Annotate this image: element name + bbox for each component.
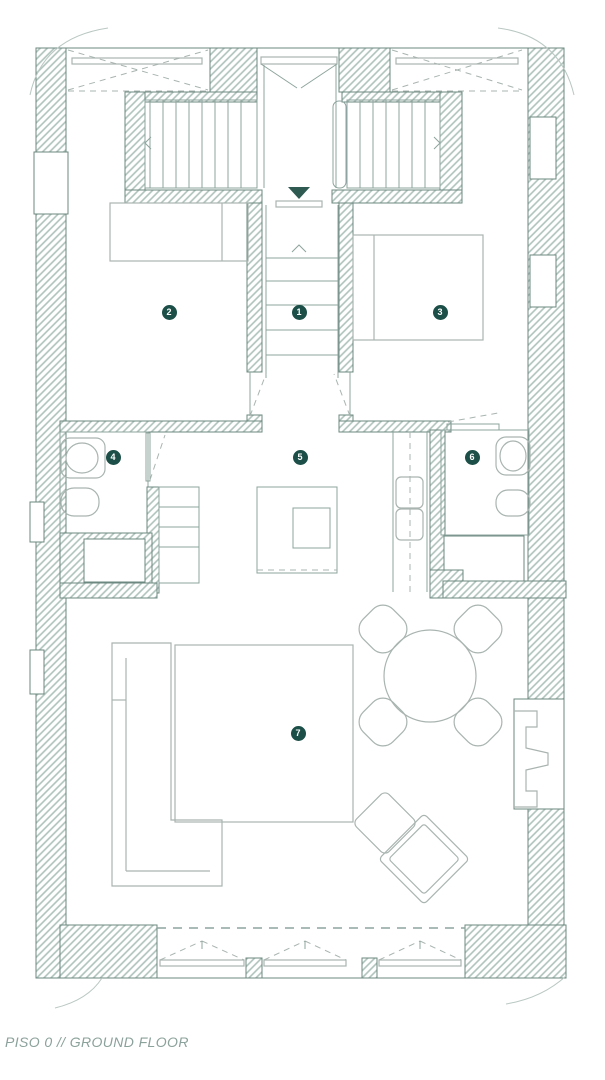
right-wall-niche-upper — [530, 117, 556, 179]
bed-2 — [110, 203, 248, 261]
wardrobe-rod — [72, 58, 202, 64]
wardrobe-jamb — [339, 48, 390, 92]
fireplace-niche — [514, 699, 564, 809]
left-wall-notch-lower — [30, 650, 44, 694]
wardrobe-right — [339, 48, 522, 92]
entrance-door — [261, 57, 337, 64]
chair — [448, 599, 507, 658]
floor-plan-page: 1 2 3 4 5 6 7 PISO 0 // GROUND FLOOR — [0, 0, 605, 1080]
bed-3 — [353, 235, 483, 340]
bathroom-4-outline — [60, 432, 148, 535]
stair-direction-arrow — [434, 137, 440, 149]
wardrobe-jamb — [210, 48, 257, 92]
toilet-4 — [61, 488, 99, 516]
stair-treads — [145, 100, 257, 188]
floor-caption: PISO 0 // GROUND FLOOR — [5, 1034, 189, 1050]
right-wall-niche-lower — [530, 255, 556, 307]
shelving — [159, 487, 199, 547]
room-marker-3: 3 — [433, 305, 448, 320]
chair — [448, 692, 507, 751]
bottom-right-corner-wall — [465, 925, 566, 978]
hall-island — [257, 487, 337, 573]
room-marker-1: 1 — [292, 305, 307, 320]
staircase-right — [332, 92, 462, 203]
staircase-left — [125, 92, 262, 203]
chair — [353, 599, 412, 658]
window — [264, 960, 346, 966]
sink-6 — [496, 437, 530, 475]
door-leaf — [447, 424, 499, 430]
step-chevron — [292, 245, 306, 252]
left-wall-notch-upper — [30, 502, 44, 542]
stair-rail — [333, 101, 346, 188]
bathroom-6-west-wall — [430, 430, 445, 570]
room-7-north-wall-left — [60, 583, 157, 598]
toilet-6 — [496, 490, 530, 516]
wardrobe-rod — [396, 58, 518, 64]
entrance-arrow-icon — [288, 187, 310, 199]
room-marker-5: 5 — [293, 450, 308, 465]
ottoman — [352, 790, 417, 855]
bedroom-2-south-wall — [60, 421, 262, 432]
entrance-step — [276, 201, 322, 207]
window-pillar — [362, 958, 377, 978]
sofa-l-shaped — [112, 643, 222, 886]
bathroom-6-outline — [441, 430, 529, 535]
window — [160, 960, 244, 966]
floor-plan-drawing — [0, 0, 605, 1080]
room-marker-4: 4 — [106, 450, 121, 465]
bottom-left-corner-wall — [60, 925, 157, 978]
bottom-windows — [160, 941, 461, 978]
room-7 — [60, 583, 564, 928]
vestibule-wall-right — [339, 203, 353, 372]
room-marker-2: 2 — [162, 305, 177, 320]
stair-treads — [347, 100, 440, 188]
window-pillar — [246, 958, 262, 978]
vestibule-wall-left — [247, 203, 262, 372]
bedroom-3 — [339, 235, 483, 432]
window — [379, 960, 461, 966]
entrance-vestibule — [247, 57, 353, 432]
armchair — [379, 814, 470, 905]
wardrobe-left — [68, 48, 257, 92]
bed-7 — [175, 645, 353, 822]
bedroom-2 — [60, 203, 262, 432]
room-marker-7: 7 — [291, 726, 306, 741]
left-wall-niche — [34, 152, 68, 214]
room-marker-6: 6 — [465, 450, 480, 465]
chair — [353, 692, 412, 751]
